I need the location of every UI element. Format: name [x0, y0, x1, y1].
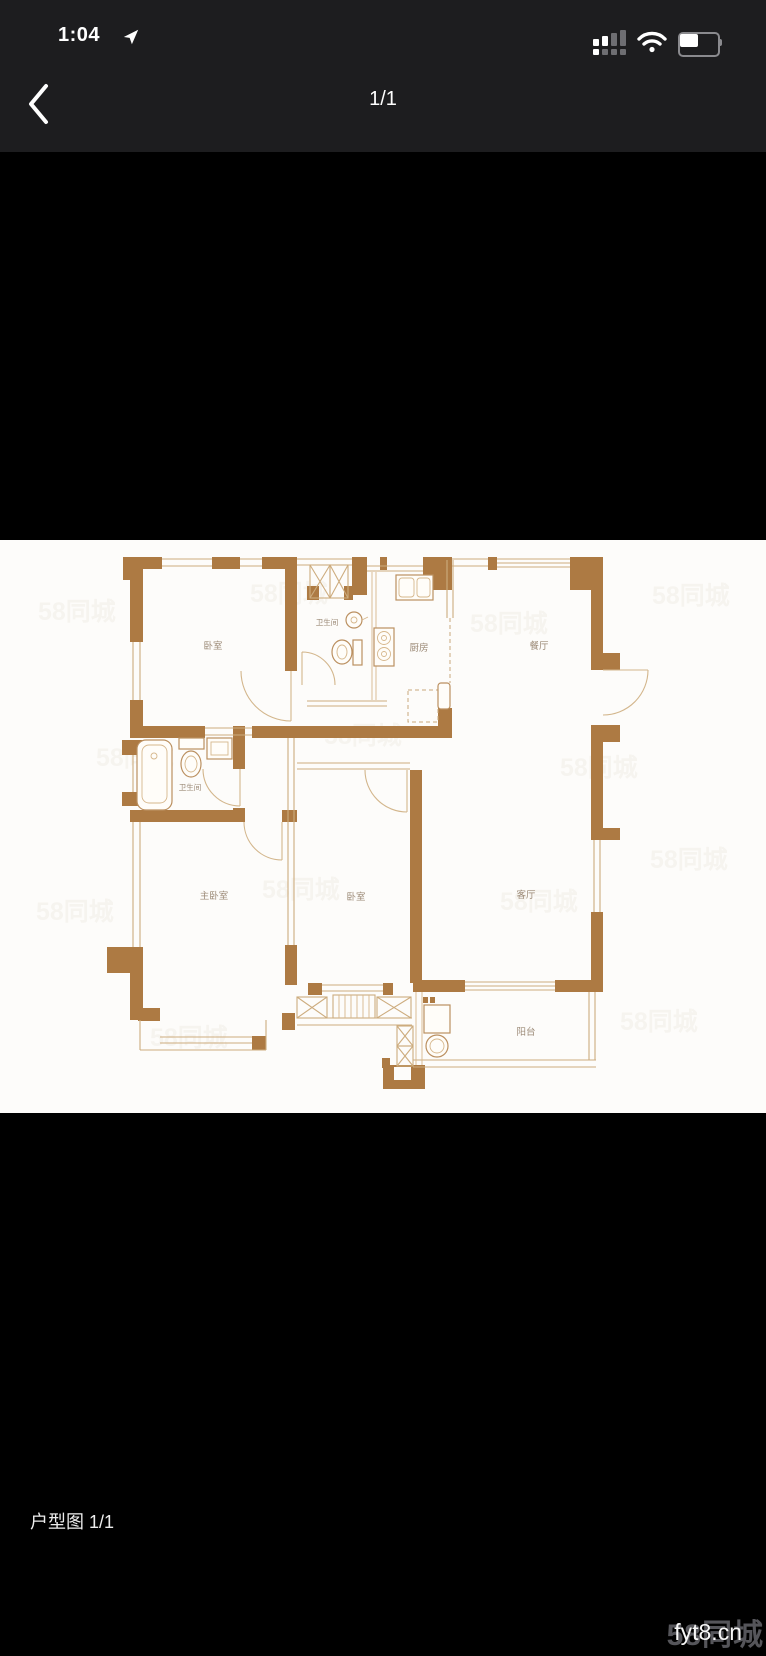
- walls: [107, 557, 620, 1089]
- kitchen-sink-icon: [396, 575, 433, 600]
- room-label-dining: 餐厅: [529, 640, 549, 652]
- toilet-icon: [179, 738, 204, 777]
- room-label-living-room: 客厅: [516, 889, 536, 901]
- status-bar: 1:04: [0, 0, 766, 64]
- room-label-bedroom-middle: 卧室: [346, 891, 365, 903]
- toilet-icon: [332, 640, 362, 665]
- photo-viewer[interactable]: 58同城 58同城 58同城 58同城 58同城 58同城 58同城 58同城 …: [0, 540, 766, 1113]
- stove-icon: [374, 628, 394, 666]
- door-arcs: [203, 652, 648, 860]
- washing-machine-icon: [424, 1005, 450, 1057]
- page-indicator: 1/1: [0, 88, 766, 111]
- room-label-master-bedroom: 主卧室: [200, 890, 229, 902]
- location-arrow-icon: [122, 28, 140, 46]
- fridge-placeholder-icon: [408, 690, 438, 722]
- wifi-icon: [637, 31, 667, 53]
- room-label-bathroom-top: 卫生间: [316, 617, 339, 627]
- site-watermark: fyt8.cn: [674, 1619, 742, 1646]
- room-label-kitchen: 厨房: [409, 642, 428, 654]
- header-bar: 1:04: [0, 0, 766, 152]
- sliding-panel-icon: [438, 683, 450, 709]
- status-time: 1:04: [58, 24, 100, 47]
- room-label-bedroom-top: 卧室: [203, 640, 222, 652]
- room-label-bathroom-left: 卫生间: [179, 782, 202, 792]
- round-sink-icon: [346, 612, 368, 628]
- washbasin-icon: [207, 738, 232, 759]
- floor-plan-image: 卧室 卫生间 厨房 餐厅 卫生间 主卧室 卧室 客厅 阳台: [0, 540, 766, 1113]
- nav-bar: 1/1: [0, 64, 766, 152]
- stairs-icon: [333, 995, 375, 1018]
- caption-text: 户型图 1/1: [30, 1508, 114, 1534]
- cellular-signal-icon: [593, 30, 626, 55]
- bathtub-icon: [137, 740, 172, 810]
- room-label-balcony: 阳台: [516, 1026, 535, 1038]
- battery-icon: [678, 32, 722, 53]
